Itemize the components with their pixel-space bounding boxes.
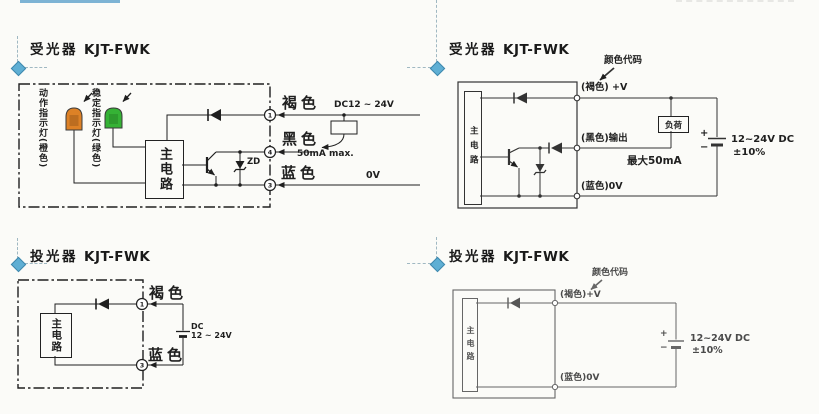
supply-voltage-label: DC12 ~ 24V	[334, 101, 394, 111]
color-code-arrow	[600, 68, 614, 80]
blue-wire-label: 蓝色	[148, 347, 186, 364]
main-circuit-box: 主电路	[464, 91, 482, 205]
transistor-icon	[207, 152, 216, 175]
load-label: 负荷	[665, 119, 682, 131]
stability-indicator-label: 稳定指示灯(绿色)	[90, 88, 99, 168]
operation-indicator-label: 动作指示灯(橙色)	[37, 88, 46, 168]
zero-volt-label: 0V	[366, 171, 380, 181]
operation-lamp-icon	[66, 108, 82, 130]
terminal-number: 3	[140, 361, 145, 369]
wire	[74, 130, 145, 183]
load-current-arrow	[322, 134, 344, 148]
supply-voltage-label: 12~24V DC	[690, 334, 750, 344]
scanned-wiring-diagram-page: 受光器 KJT-FWK 受光器 KJT-FWK 投光器 KJT-FWK 投光器 …	[0, 0, 819, 414]
battery-plus-sign: +	[660, 330, 668, 340]
terminal-circle	[552, 300, 557, 305]
supply-voltage-label: 12~24V DC	[731, 134, 794, 145]
black-wire-label: 黑色	[282, 131, 320, 148]
lamp-pointer-arrow	[123, 93, 131, 102]
load-box: 负荷	[658, 116, 689, 133]
brown-wire-label: 褐色	[282, 95, 320, 112]
supply-range-label: 12 ~ 24V	[191, 332, 232, 341]
battery-minus-sign: −	[700, 142, 708, 153]
color-code-label: 颜色代码	[592, 269, 628, 279]
terminal-circle	[574, 95, 580, 101]
brown-wire-label: (褐色) +V	[581, 83, 627, 93]
main-circuit-box: 主电路	[145, 140, 184, 199]
transistor-icon	[509, 148, 519, 167]
battery-plus-sign: +	[700, 128, 708, 139]
battery-icon	[176, 332, 190, 337]
color-code-arrow	[591, 280, 602, 290]
stability-lamp-icon	[105, 108, 122, 128]
brown-wire-label: (褐色)+V	[560, 291, 601, 301]
main-circuit-label: 主电路	[469, 126, 478, 170]
terminal-numbers: 1 4 3	[268, 111, 273, 189]
main-circuit-label: 主电路	[466, 326, 474, 365]
blue-wire-label: (蓝色)0V	[560, 374, 599, 384]
blue-wire-label: 蓝色	[281, 165, 319, 182]
zener-label: ZD	[247, 158, 260, 167]
zener-diode-icon	[234, 152, 246, 185]
junction-dot	[238, 150, 242, 154]
diode-icon	[549, 143, 562, 154]
junction-dot	[538, 146, 542, 150]
battery-icon	[668, 341, 684, 348]
terminal-circle	[552, 384, 557, 389]
sensor-dashed-outline	[18, 280, 143, 388]
terminal-number: 4	[268, 148, 273, 156]
brown-wire-label: 褐色	[149, 285, 187, 302]
terminal-circle	[574, 193, 580, 199]
terminal-circle	[574, 145, 580, 151]
battery-minus-sign: −	[660, 344, 668, 354]
main-circuit-box: 主电路	[40, 313, 72, 358]
load-box	[331, 121, 357, 134]
black-output-label: (黑色)输出	[581, 134, 628, 144]
tolerance-label: ±10%	[733, 147, 765, 158]
main-circuit-label: 主电路	[51, 318, 62, 353]
wire	[113, 128, 145, 147]
color-code-label: 颜色代码	[604, 56, 642, 66]
terminal-number: 1	[268, 111, 273, 119]
zener-diode-icon	[534, 148, 546, 196]
current-max-label: 50mA max.	[297, 150, 354, 160]
tolerance-label: ±10%	[692, 346, 723, 356]
battery-icon	[708, 139, 726, 146]
terminal-number: 1	[140, 300, 145, 308]
terminal-number: 3	[268, 181, 273, 189]
wire	[167, 115, 265, 140]
blue-wire-label: (蓝色)0V	[581, 182, 623, 192]
max-current-label: 最大50mA	[627, 156, 682, 168]
main-circuit-label: 主电路	[158, 147, 171, 192]
main-circuit-box: 主电路	[462, 298, 478, 392]
